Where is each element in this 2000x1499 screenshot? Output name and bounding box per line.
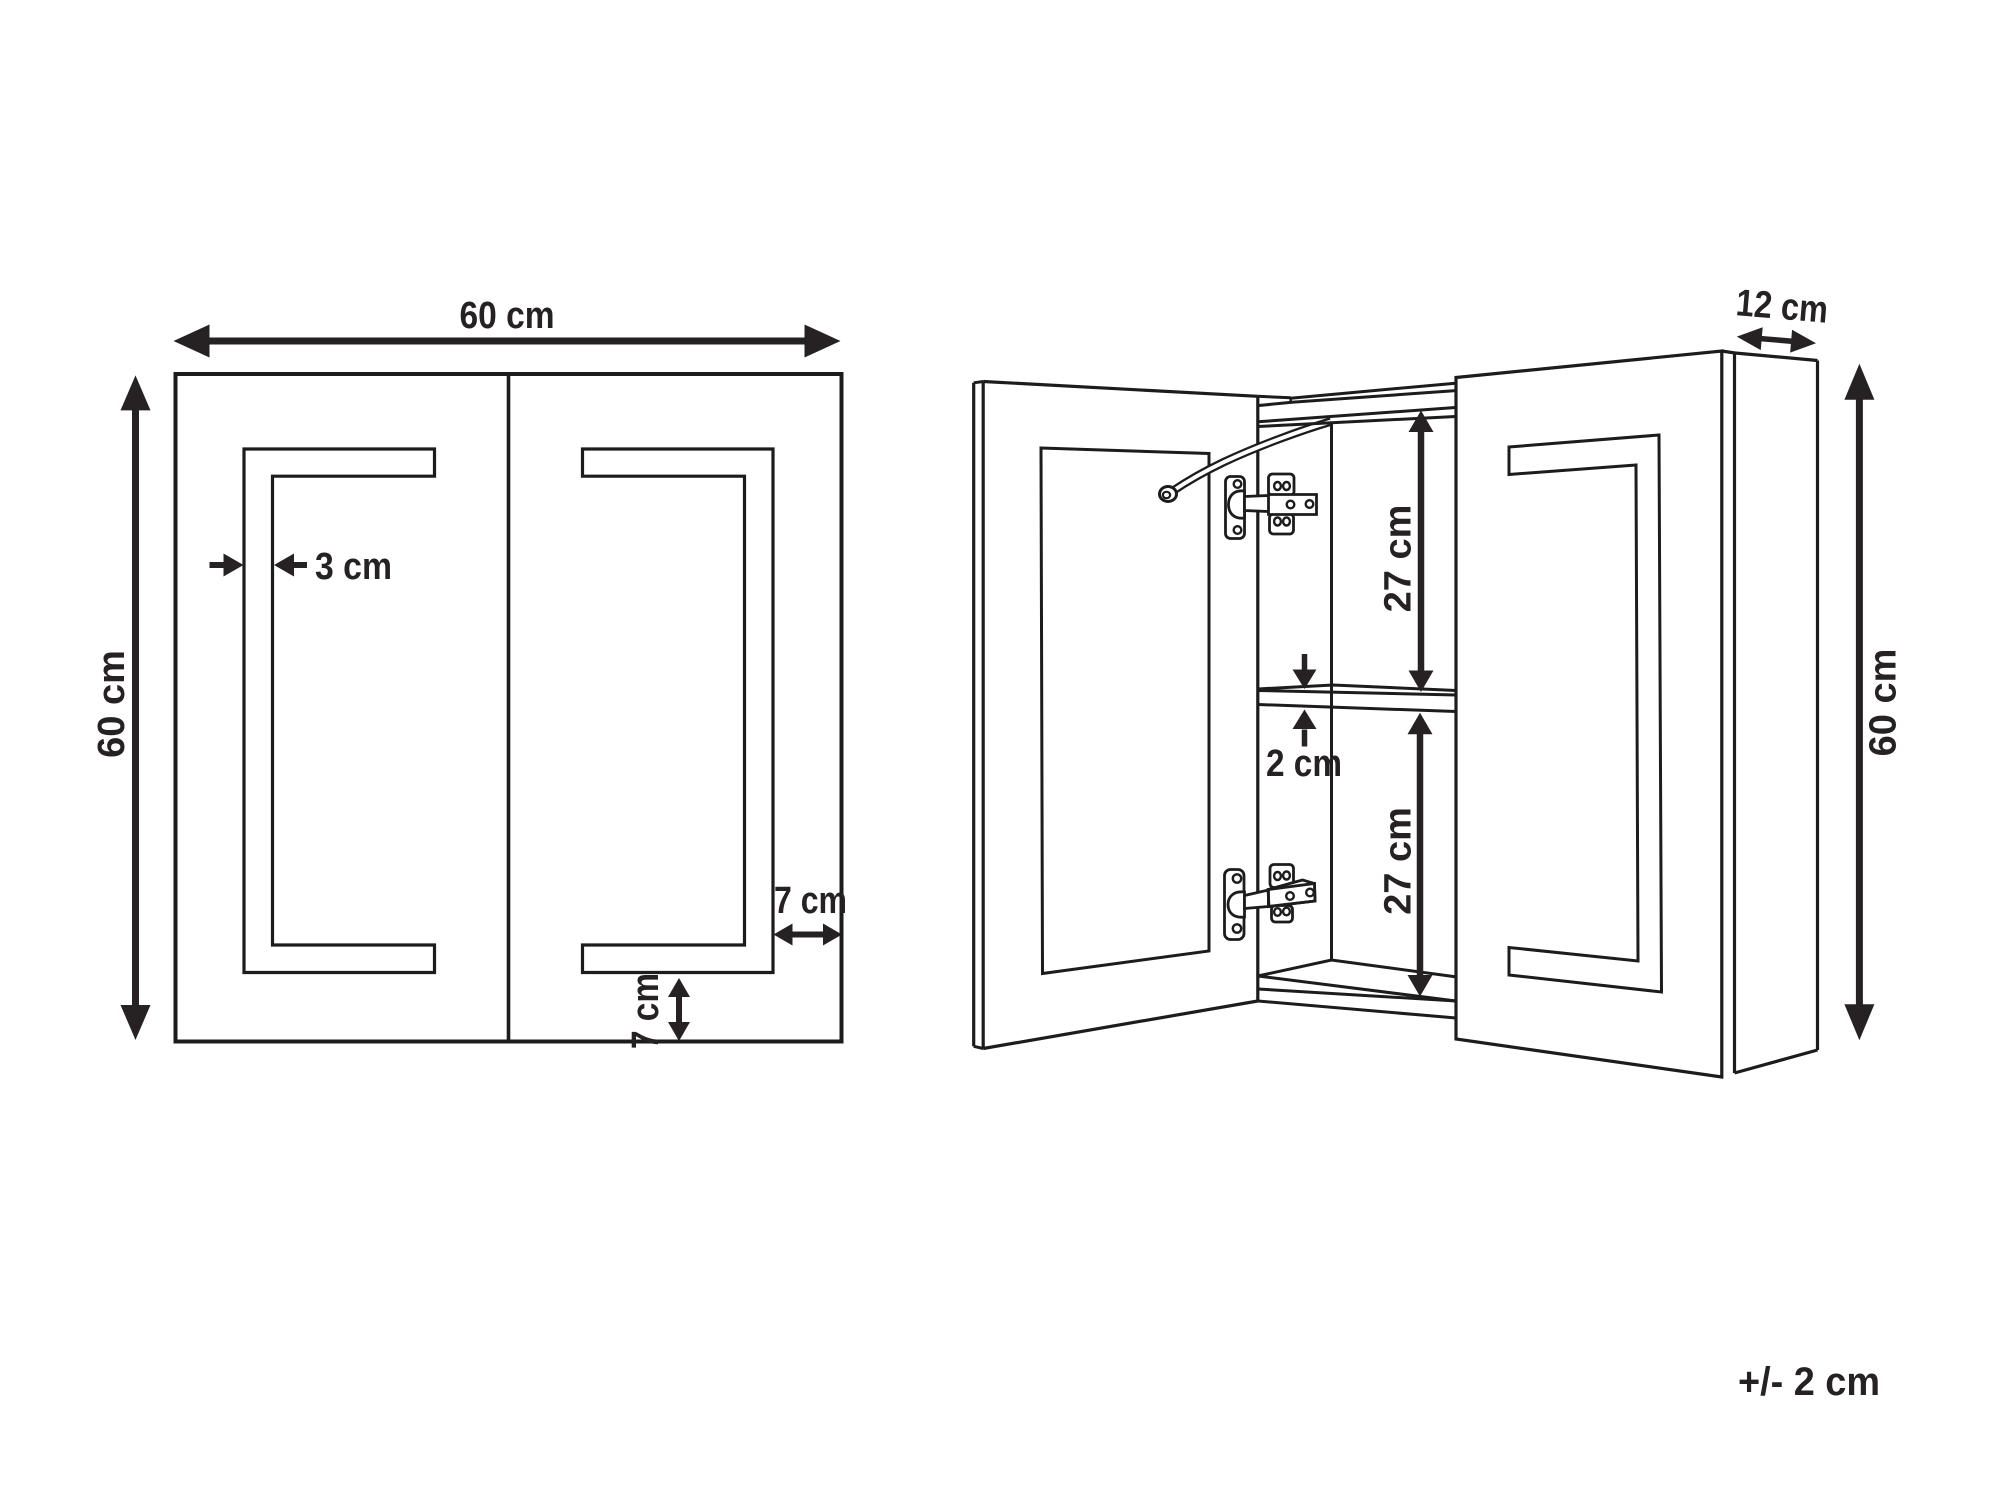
svg-text:7 cm: 7 cm [625,973,667,1049]
svg-text:2 cm: 2 cm [1266,743,1342,785]
svg-text:7 cm: 7 cm [774,880,847,922]
svg-text:+/- 2 cm: +/- 2 cm [1738,1360,1880,1404]
svg-text:3 cm: 3 cm [315,546,392,588]
svg-text:60 cm: 60 cm [460,295,555,337]
svg-text:27 cm: 27 cm [1378,807,1420,915]
svg-text:12 cm: 12 cm [1734,282,1829,332]
svg-text:60 cm: 60 cm [1863,649,1905,757]
svg-text:60 cm: 60 cm [91,650,133,758]
svg-text:27 cm: 27 cm [1378,505,1420,613]
